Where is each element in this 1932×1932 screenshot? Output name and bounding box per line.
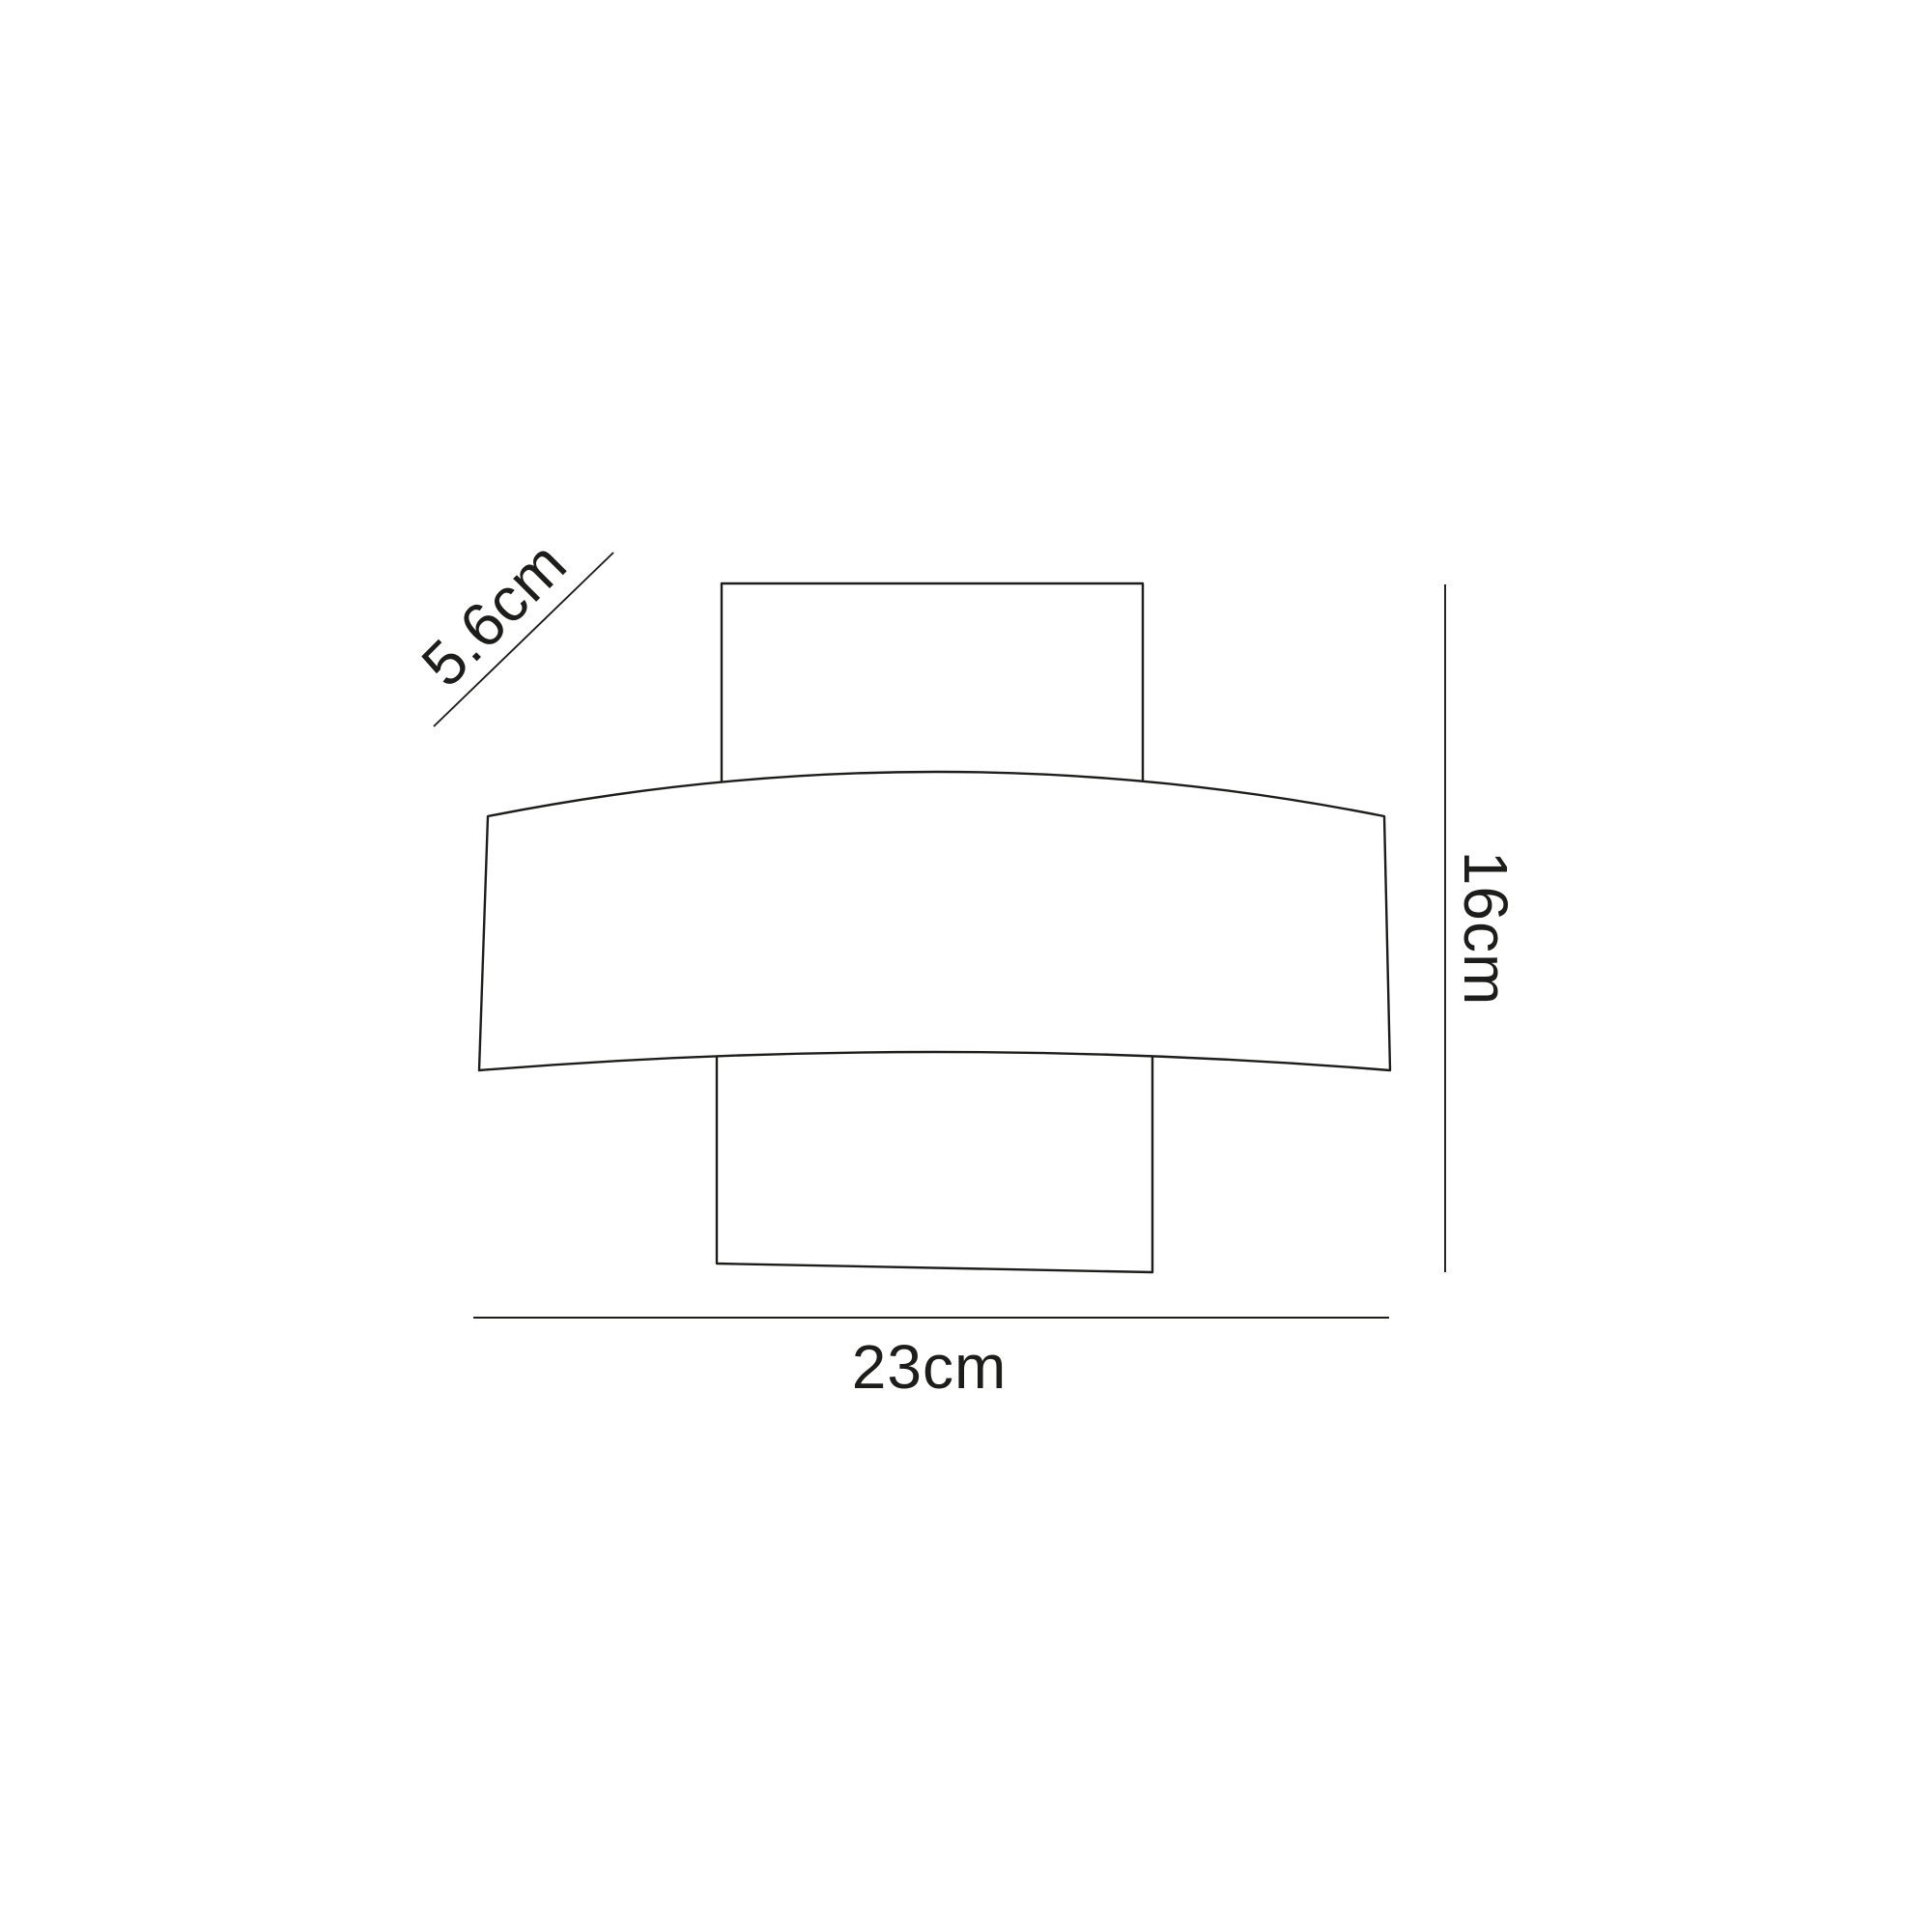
width-dimension-label: 23cm [852, 1332, 1008, 1402]
wall-light-dimension-drawing: 5.6cm 16cm 23cm [0, 0, 1932, 1932]
depth-dimension-label: 5.6cm [409, 528, 581, 700]
bottom-plate-outline [717, 1055, 1152, 1272]
height-dimension-label: 16cm [1451, 851, 1520, 1007]
dimension-diagram-page: 5.6cm 16cm 23cm [0, 0, 1932, 1932]
front-band-outline [479, 772, 1390, 1070]
